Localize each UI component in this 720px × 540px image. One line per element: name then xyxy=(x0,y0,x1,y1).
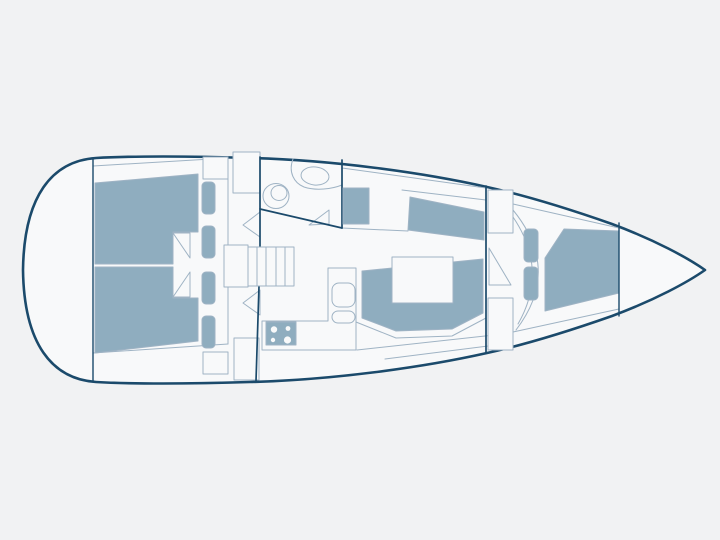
aft-cabin-bottom-pillow-1 xyxy=(202,272,215,304)
fwd-locker-bottom xyxy=(488,298,513,350)
galley-stove xyxy=(266,322,296,345)
stove-burner-4 xyxy=(284,336,291,343)
head-toilet-inner xyxy=(271,186,287,201)
yacht-floorplan-page xyxy=(0,0,720,540)
aft-cabin-top-shelf xyxy=(203,157,228,179)
salon-table xyxy=(392,257,453,303)
galley-sink xyxy=(332,283,355,307)
vberth-cushion-2 xyxy=(524,267,538,300)
nav-seat xyxy=(343,188,369,224)
stove-burner-2 xyxy=(286,326,291,331)
galley-sink-drainer xyxy=(332,311,355,323)
aft-cabin-bottom-shelf xyxy=(203,352,228,374)
fwd-locker-top xyxy=(488,190,513,233)
vberth-cushion-1 xyxy=(524,229,538,262)
aft-cabin-top-pillow-2 xyxy=(202,226,215,258)
companionway-steps xyxy=(248,247,294,286)
top-locker xyxy=(233,152,260,193)
aft-cabin-bottom-pillow-2 xyxy=(202,316,215,348)
bottom-locker xyxy=(234,338,259,380)
stove-burner-3 xyxy=(271,338,275,342)
aft-cabin-top-pillow-1 xyxy=(202,182,215,214)
engine-box xyxy=(224,245,248,287)
yacht-floorplan-diagram xyxy=(0,0,720,540)
stove-burner-1 xyxy=(271,326,277,332)
